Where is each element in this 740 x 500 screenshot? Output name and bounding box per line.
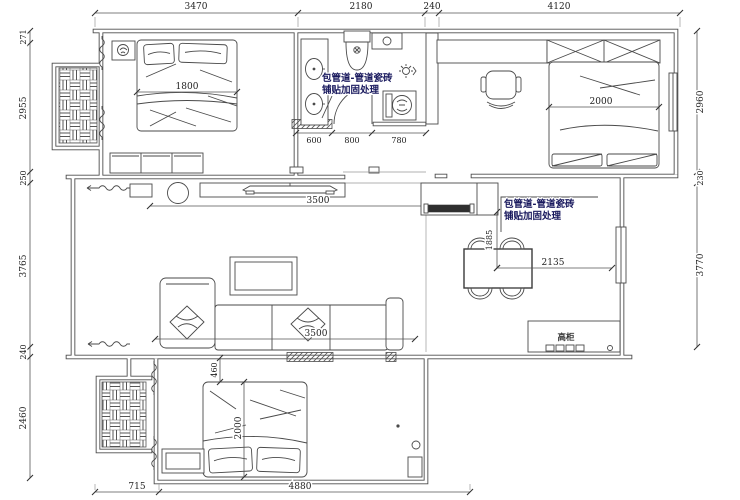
- shelf: [372, 33, 402, 49]
- study-bed: [549, 62, 659, 168]
- dim-top-4: 4120: [548, 2, 571, 12]
- desk-counter: [437, 40, 547, 63]
- dim-right-3: 3770: [696, 253, 706, 276]
- stool: [168, 183, 189, 204]
- dim-bottom-2: 4880: [289, 482, 312, 492]
- dim-label-bath-1: 600: [306, 136, 321, 145]
- dim-label-master-bed: 1800: [176, 82, 199, 92]
- sliding-wardrobe: [547, 40, 660, 63]
- wall-hatch-entry: [386, 353, 396, 362]
- dim-bottom-1: 715: [128, 482, 145, 492]
- pipe-note-line1: 包管道-管道瓷砖: [503, 198, 575, 210]
- balcony-bottom-left: [102, 382, 146, 447]
- dim-label-dining-depth: 1885: [485, 230, 494, 250]
- wall-hatch-living-south: [287, 353, 333, 362]
- side-cabinet: [130, 184, 152, 197]
- pipe-note-bathroom: 包管道-管道瓷砖 铺贴加固处理: [321, 72, 393, 118]
- entry: [396, 424, 420, 449]
- office-chair: [481, 71, 521, 109]
- shower-head-icon: [399, 64, 416, 78]
- dim-label-dining-width: 2135: [542, 258, 565, 268]
- dim-right-1: 2960: [696, 90, 706, 113]
- dim-bathroom: 600 800 780: [293, 130, 429, 145]
- master-bedroom: 1800: [100, 36, 240, 173]
- dim-right-2: 230: [696, 170, 705, 185]
- tall-cabinet-label: 高柜: [557, 332, 575, 343]
- pipe-note-line1: 包管道-管道瓷砖: [321, 72, 393, 84]
- floor-drain: [396, 424, 399, 427]
- dim-left-3: 250: [19, 170, 28, 185]
- pillows: [143, 43, 227, 65]
- balcony-floor-pattern: [102, 382, 146, 447]
- dim-left-5: 240: [19, 344, 28, 359]
- dining-table: [464, 249, 532, 288]
- dim-bed2-gap: 460: [210, 355, 223, 385]
- nightstand: [162, 449, 204, 473]
- dim-label-study-bed: 2000: [590, 97, 613, 107]
- study-room: 2000: [437, 40, 662, 168]
- dim-top-3: 240: [423, 2, 440, 12]
- dim-label-bath-2: 800: [344, 136, 359, 145]
- pipe-note-dining: 包管道-管道瓷砖 铺贴加固处理: [501, 197, 598, 232]
- entry-niche: [408, 457, 422, 477]
- tall-cabinet: 高柜: [528, 321, 620, 352]
- sofa-arm: [386, 298, 403, 350]
- dim-top: 3470 2180 240 4120: [92, 2, 683, 27]
- pipe-shaft-wall: [426, 33, 438, 124]
- balcony-top-left: [59, 68, 97, 143]
- wardrobe: [110, 153, 203, 173]
- kitchen-dining: 包管道-管道瓷砖 铺贴加固处理 1885 2135 高柜: [421, 183, 620, 352]
- washing-machine: [383, 91, 416, 120]
- dim-left-6: 2460: [19, 406, 29, 429]
- nightstand: [112, 41, 135, 60]
- dim-left-4: 3765: [19, 254, 29, 277]
- balcony-floor-pattern: [59, 68, 97, 143]
- floor-plan-drawing: 1800: [0, 0, 740, 500]
- dim-label-bed2: 2000: [234, 416, 244, 439]
- coffee-table: [230, 257, 297, 295]
- dining-chair: [500, 288, 524, 299]
- bedroom-2: 2000 460: [152, 355, 307, 480]
- living-room: 3500 3500: [87, 183, 431, 351]
- dim-label-tv-wall: 3500: [307, 196, 330, 206]
- pipe-note-line2: 铺贴加固处理: [322, 84, 380, 96]
- dim-label-bed2-gap: 460: [210, 362, 219, 377]
- floor-plan-canvas: 1800: [0, 0, 740, 500]
- curtain-symbol: [87, 186, 130, 347]
- wall-stub-1: [290, 167, 303, 173]
- dim-right: 2960 230 3770: [694, 28, 706, 350]
- toilet: [344, 31, 370, 70]
- dining-chair: [468, 288, 492, 299]
- dim-top-1: 3470: [185, 2, 208, 12]
- dim-label-sofa-wall: 3500: [305, 329, 328, 339]
- pipe-note-line2: 铺贴加固处理: [504, 210, 562, 222]
- kitchen-counter: [421, 183, 498, 215]
- dim-left-1: 271: [19, 29, 28, 44]
- dim-top-2: 2180: [350, 2, 373, 12]
- dim-label-bath-3: 780: [391, 136, 406, 145]
- cooktop: [427, 205, 471, 212]
- dining-chair: [500, 238, 524, 249]
- dim-tv-wall: 3500: [147, 196, 431, 209]
- door-stop: [412, 441, 420, 449]
- dim-left-2: 2955: [19, 96, 29, 119]
- dim-left: 271 2955 250 3765 240 2460: [19, 28, 33, 481]
